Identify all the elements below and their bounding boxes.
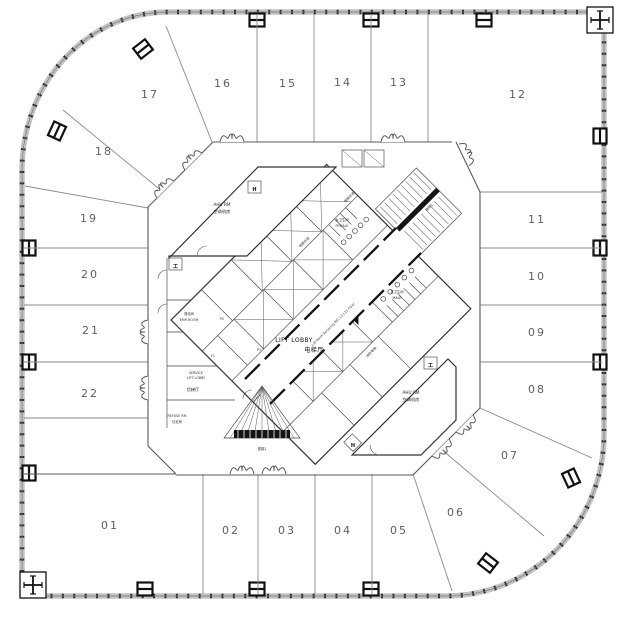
zone-label-06: 06 [447,506,465,519]
emr-room-label-cn: 强电间 [184,311,194,316]
zone-label-13: 13 [390,76,408,89]
lift-p2-label: P2 [220,317,224,321]
beam-marker-west: 工 [169,258,182,270]
lift-p1-label: P1 [257,348,261,352]
zone-label-17: 17 [141,88,159,101]
zone-label-07: 07 [501,449,519,462]
hose-reel-label: H [351,443,355,449]
lift-lobby-label-cn: 电梯厅 [304,346,323,354]
lift-f1-label: F1 [211,354,215,358]
zone-label-03: 03 [278,524,296,537]
zone-label-20: 20 [81,268,99,281]
zone-label-01: 01 [101,519,119,532]
zone-label-05: 05 [390,524,408,537]
ahu-nw-label-cn: 空调机房 [214,208,231,215]
zone-label-21: 21 [82,324,100,337]
service-lift-lobby-label-en2: LIFT LOBBY [187,376,206,380]
stair2-label: 楼梯2 [258,446,267,451]
zone-label-04: 04 [334,524,352,537]
zone-label-19: 19 [80,212,98,225]
service-lift-lobby-label-cn: 货梯厅 [187,386,200,393]
zone-label-12: 12 [509,88,527,101]
ahu-se-label-en: AHU RM [403,390,420,395]
emr-room-label-en: EMR ROOM [180,318,199,322]
beam-marker-east: 工 [424,357,437,369]
refuse-room-label-cn: 垃圾房 [172,419,183,424]
air-shaft-rooms [342,150,384,167]
zone-label-02: 02 [222,524,240,537]
lift-lobby-label-en: LIFT LOBBY [275,337,312,344]
floor-plan-page: H H 工 工 01 02 03 04 05 06 07 08 09 10 11… [0,0,632,620]
zone-label-22: 22 [81,387,99,400]
zone-label-18: 18 [95,145,113,158]
ahu-nw-label-en: AHU RM [214,202,231,207]
female-toilet-label-en: FEMALE [336,224,349,228]
floor-plan-drawing: H H 工 工 01 02 03 04 05 06 07 08 09 10 11… [0,0,632,620]
female-toilet-label-cn: 女卫生间 [335,217,348,222]
zone-label-08: 08 [528,383,546,396]
beam-label: 工 [173,264,178,270]
hose-reel-label: H [252,187,256,193]
corner-column-top-right [587,7,613,33]
service-lift-lobby-label-en1: SERVICE [189,371,203,375]
corner-column-bottom-left [20,572,46,598]
zone-label-16: 16 [214,77,232,90]
refuse-room-label-en: REFUSE RM [167,414,186,418]
beam-label: 工 [428,363,433,369]
male-toilet-label-en: MALE [392,296,401,300]
ahu-se-label-cn: 空调机房 [403,396,420,403]
zone-label-11: 11 [528,213,546,226]
zone-label-14: 14 [334,76,352,89]
male-toilet-label-cn: 男卫生间 [390,289,403,294]
zone-label-15: 15 [279,77,297,90]
zone-label-09: 09 [528,326,546,339]
zone-label-10: 10 [528,270,546,283]
